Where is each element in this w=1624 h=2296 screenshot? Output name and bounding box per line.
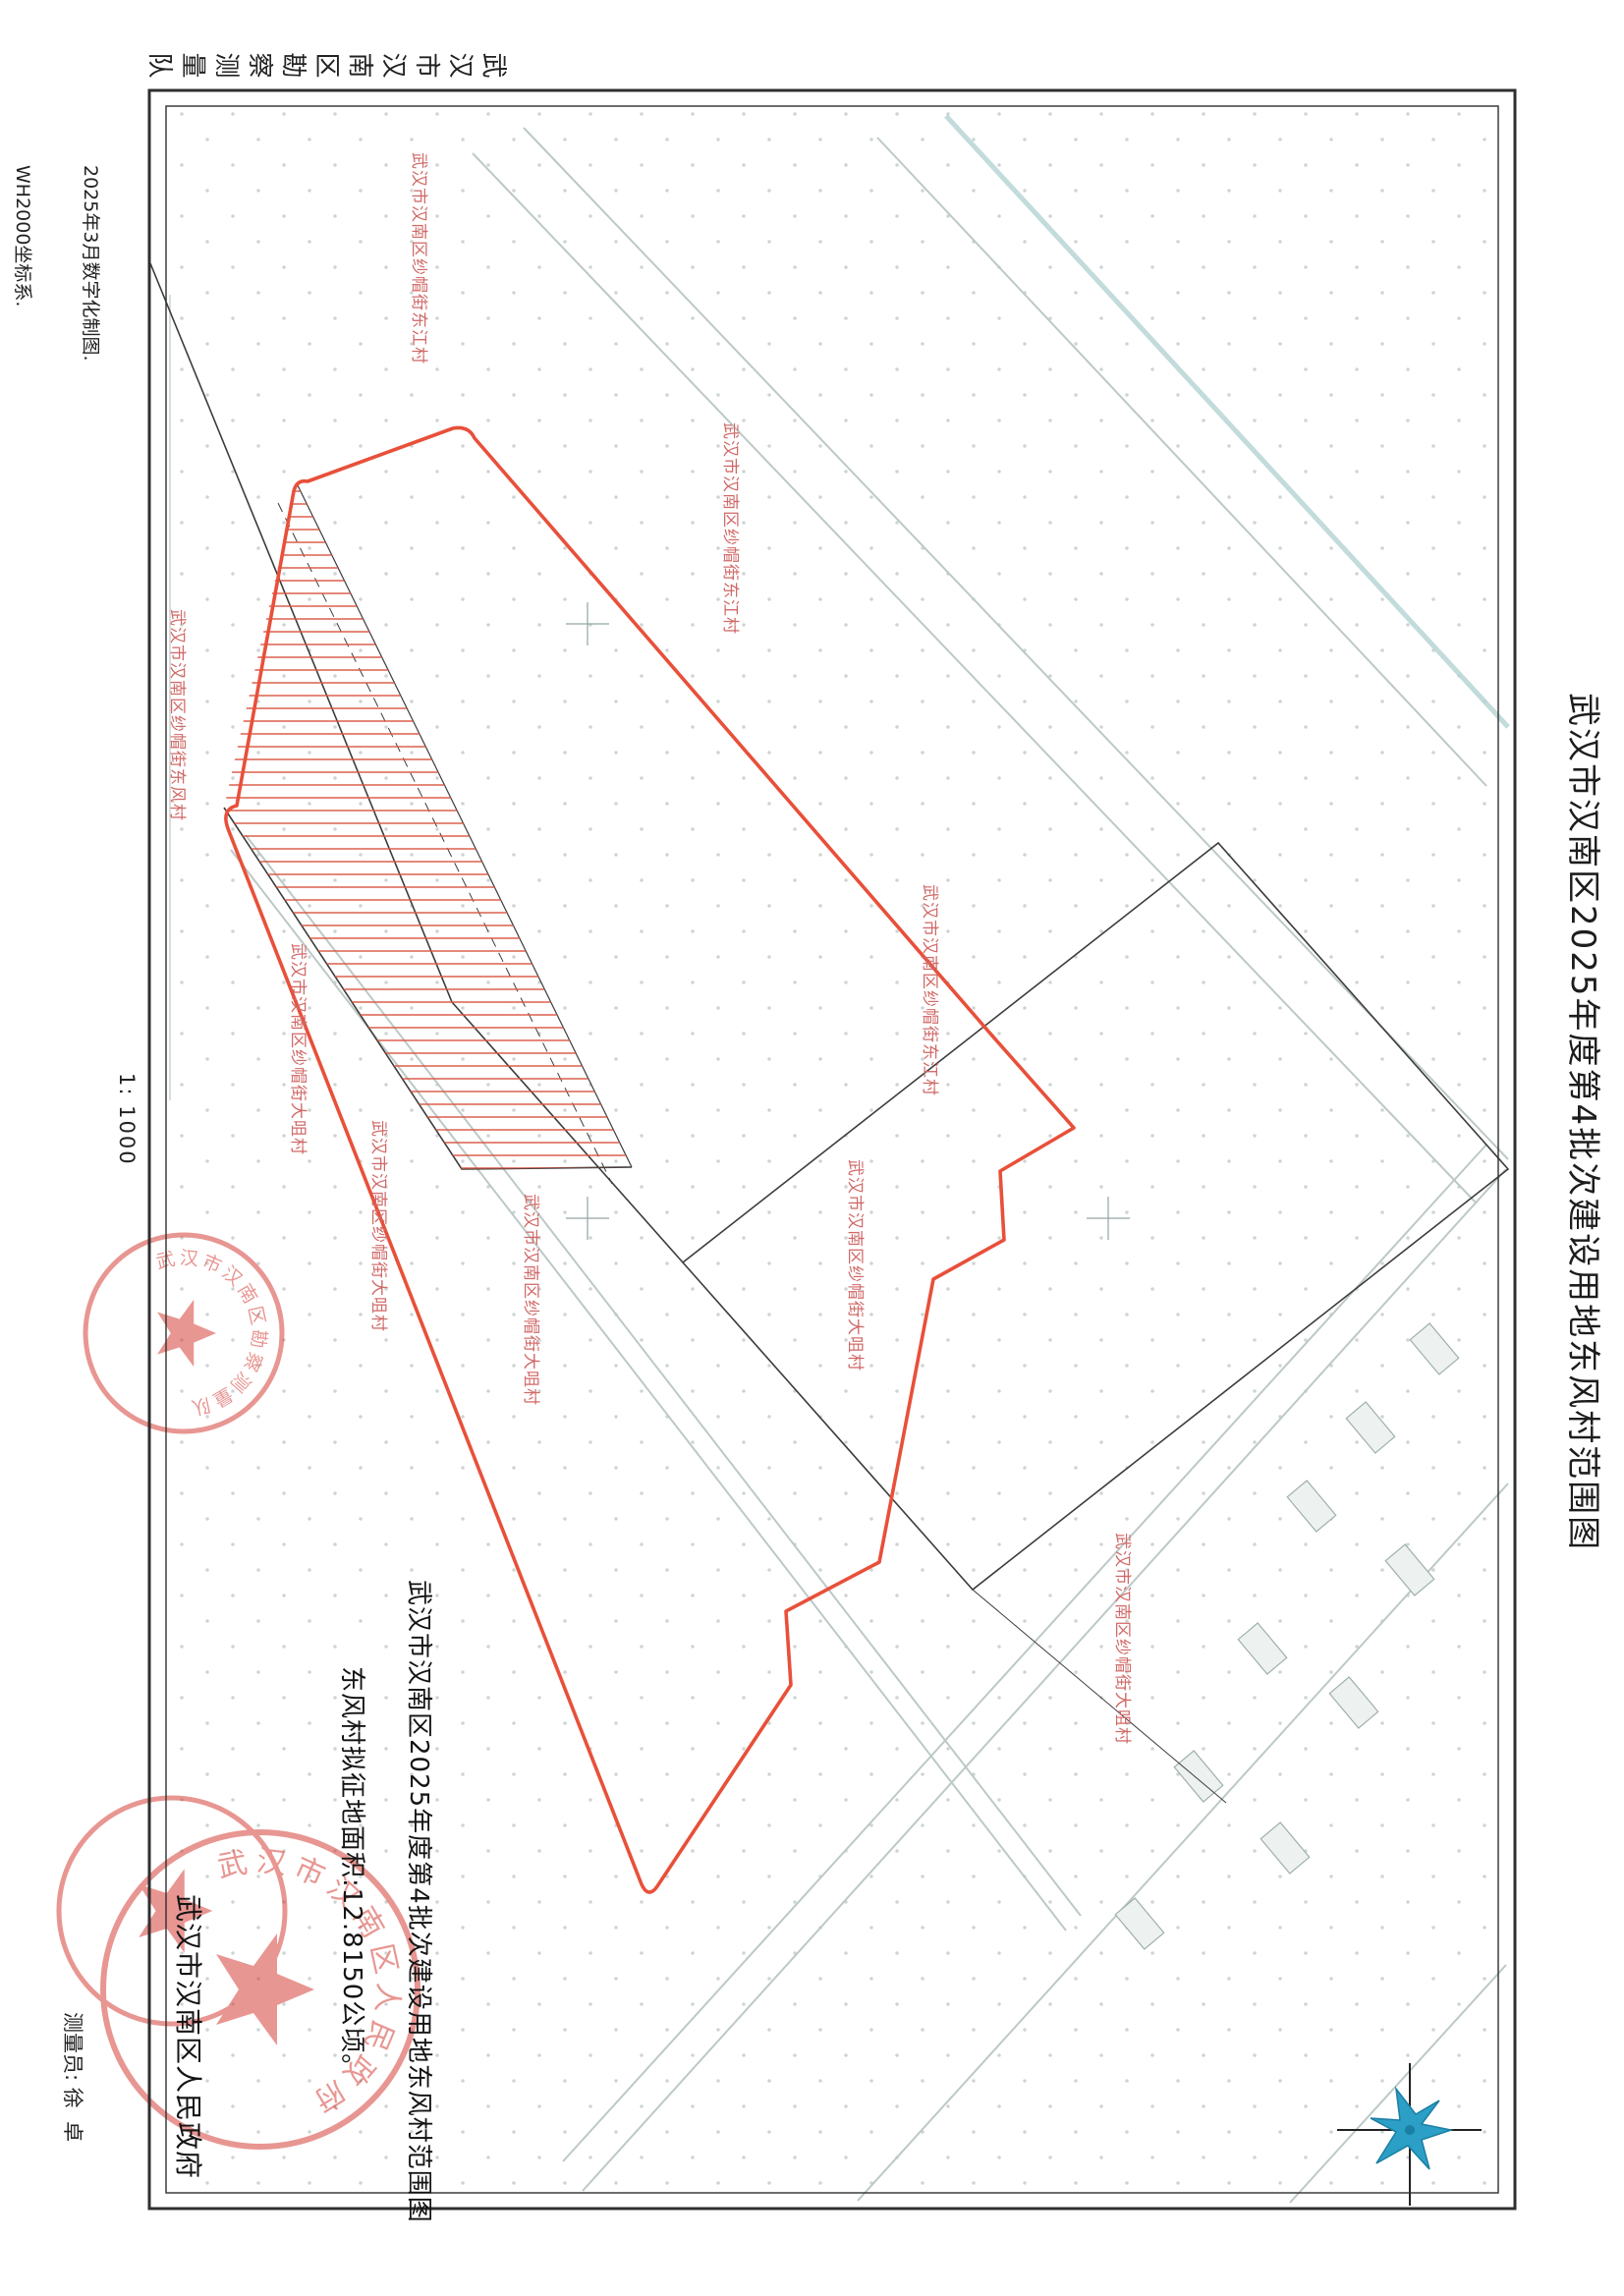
- issuer-name: 武汉市汉南区人民政府: [170, 1894, 209, 2179]
- credits-block: 测量员: 徐 卓 绘图员: 左珉禹 检查员: 余胜林: [0, 2012, 148, 2150]
- village-label: 武汉市汉南区纱帽街东江村: [409, 152, 433, 364]
- landscape-sheet: 武汉市汉南区勘察测量队 武汉市汉南区人民政府: [0, 0, 1624, 2296]
- map-notes: 2025年3月数字化制图. WH2000坐标系. 1985国家高程基准. 200…: [0, 165, 146, 361]
- note-digitized: 2025年3月数字化制图.: [79, 165, 101, 361]
- map-canvas: 武汉市汉南区勘察测量队 武汉市汉南区人民政府: [0, 0, 1624, 2296]
- map-sheet-page: 武汉市汉南区勘察测量队 武汉市汉南区人民政府: [0, 0, 1624, 2296]
- village-label: 武汉市汉南区纱帽街东风村: [167, 609, 192, 821]
- village-label: 武汉市汉南区纱帽街大咀村: [288, 943, 312, 1155]
- village-label: 武汉市汉南区纱帽街大咀村: [1112, 1533, 1137, 1745]
- village-label: 武汉市汉南区纱帽街大咀村: [521, 1194, 545, 1406]
- surveyor-line: 测量员: 徐 卓: [57, 2012, 87, 2150]
- village-label: 武汉市汉南区纱帽街大咀村: [845, 1159, 869, 1372]
- annotation-line1: 武汉市汉南区2025年度第4批次建设用地东风村范围图: [403, 1580, 439, 2223]
- scale-label: 1: 1000: [115, 1073, 139, 1166]
- surveyor-label: 测量员:: [61, 2012, 84, 2081]
- sheet-title: 武汉市汉南区2025年度第4批次建设用地东风村范围图: [1562, 693, 1610, 1551]
- annotation-area: 东风村拟征地面积:12.8150公顷。: [336, 1666, 372, 2080]
- village-label: 武汉市汉南区纱帽街东江村: [720, 422, 745, 635]
- village-label: 武汉市汉南区纱帽街东江村: [920, 884, 944, 1096]
- surveyor-name: 徐 卓: [61, 2088, 84, 2142]
- village-label: 武汉市汉南区纱帽街大咀村: [368, 1120, 393, 1332]
- surveying-unit-label: 武汉市汉南区勘察测量队: [140, 45, 508, 82]
- note-coordinate-system: WH2000坐标系.: [11, 165, 33, 361]
